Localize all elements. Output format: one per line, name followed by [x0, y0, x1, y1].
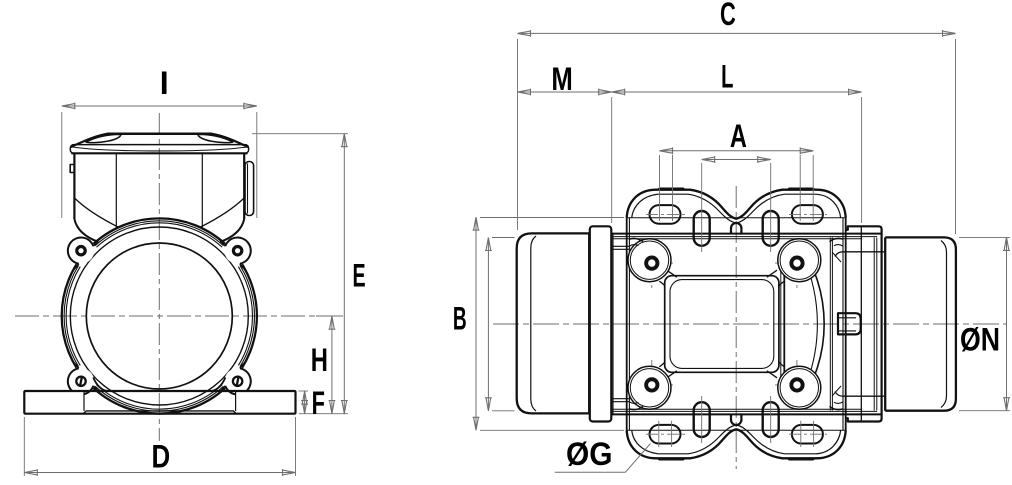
svg-text:ØG: ØG [566, 436, 613, 472]
svg-text:H: H [311, 342, 328, 378]
svg-text:M: M [551, 61, 572, 97]
svg-text:E: E [353, 257, 366, 293]
svg-text:B: B [453, 300, 467, 336]
svg-text:ØN: ØN [960, 322, 1000, 358]
svg-text:C: C [720, 0, 736, 32]
svg-text:L: L [721, 59, 733, 95]
svg-text:A: A [730, 118, 747, 154]
svg-text:I: I [160, 65, 169, 101]
svg-text:F: F [312, 385, 325, 421]
svg-text:D: D [152, 439, 171, 475]
